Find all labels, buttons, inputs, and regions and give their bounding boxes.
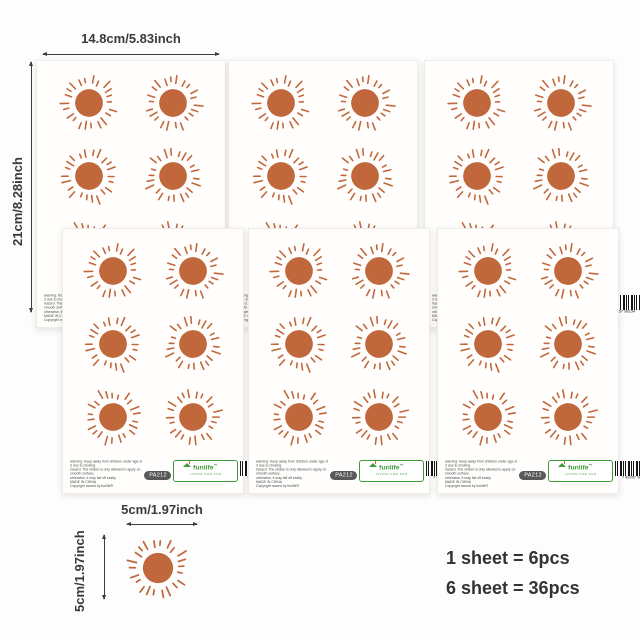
funlife-logo: funlife™ LIVING FOR FUN <box>359 460 424 482</box>
sun-sticker <box>444 300 532 388</box>
roof-icon <box>369 463 377 467</box>
sun-grid <box>259 238 419 450</box>
sku-badge: PA212 <box>144 471 171 480</box>
pcs-line-2: 6 sheet = 36pcs <box>446 573 580 603</box>
sun-sticker <box>447 376 529 458</box>
warning-text: warning: Keep away from children under a… <box>70 460 142 489</box>
brand-text: funlife <box>379 464 399 472</box>
sun-grid <box>73 238 233 450</box>
sticker-height-label: 5cm/1.97inch <box>72 528 87 612</box>
trademark-symbol: ™ <box>589 464 593 469</box>
sun-sticker <box>147 371 238 462</box>
logo-tagline: LIVING FOR FUN <box>565 473 597 476</box>
sheet-height-label: 21cm/8.28inch <box>10 156 25 246</box>
sun-sticker <box>522 371 613 462</box>
funlife-logo: funlife™ LIVING FOR FUN <box>173 460 238 482</box>
sticker-sheet: warning: Keep away from children under a… <box>248 228 430 494</box>
warning-line: Copyright owned by funlife® <box>70 484 142 488</box>
sun-sticker <box>515 57 608 150</box>
sheet-footer: warning: Keep away from children under a… <box>256 458 425 488</box>
sheet-width-label: 14.8cm/5.83inch <box>41 31 221 46</box>
sheet-footer: warning: Keep away from children under a… <box>70 458 239 488</box>
warning-text: warning: Keep away from children under a… <box>445 460 517 489</box>
sun-sticker <box>80 238 146 304</box>
sun-sticker <box>336 301 421 386</box>
chimney-icon <box>375 461 377 464</box>
sun-sticker <box>237 132 325 220</box>
warning-line: warning: Keep away from children under a… <box>445 460 517 468</box>
warning-line: Copyright owned by funlife® <box>445 484 517 488</box>
sun-sticker <box>433 132 521 220</box>
pcs-line-1: 1 sheet = 6pcs <box>446 543 580 573</box>
sun-sticker <box>130 133 215 218</box>
barcode-bars <box>615 461 640 476</box>
sun-sticker <box>258 376 340 458</box>
sheet-height-arrow <box>31 62 32 312</box>
sun-sticker <box>127 57 220 150</box>
roof-icon <box>183 463 191 467</box>
brand-text: funlife <box>193 464 213 472</box>
sku-text: PA212 <box>149 473 167 479</box>
sun-sticker <box>525 301 610 386</box>
logo-tagline: LIVING FOR FUN <box>376 473 408 476</box>
brand-name: funlife™ <box>193 465 218 472</box>
warning-line: Copyright owned by funlife® <box>256 484 328 488</box>
warning-line: hazard. The sticker is only allowed to a… <box>256 468 328 476</box>
sticker-sheet: warning: Keep away from children under a… <box>437 228 619 494</box>
trademark-symbol: ™ <box>400 464 404 469</box>
sun-sticker <box>147 225 240 318</box>
sku-text: PA212 <box>335 473 353 479</box>
sun-sticker <box>266 238 332 304</box>
funlife-logo: funlife™ LIVING FOR FUN <box>548 460 613 482</box>
sun-sticker <box>518 133 603 218</box>
sun-sticker <box>69 300 157 388</box>
sun-sticker <box>248 70 314 136</box>
sticker-sheet: warning: Keep away from children under a… <box>62 228 244 494</box>
brand-text: funlife <box>568 464 588 472</box>
sticker-height-arrow <box>104 535 105 599</box>
sheet-width-arrow <box>43 54 219 55</box>
sun-sticker <box>45 132 133 220</box>
sku-text: PA212 <box>524 473 542 479</box>
sun-sticker <box>56 70 122 136</box>
brand-name: funlife™ <box>568 465 593 472</box>
sun-sticker <box>455 238 521 304</box>
warning-line: warning: Keep away from children under a… <box>70 460 142 468</box>
warning-line: warning: Keep away from children under a… <box>256 460 328 468</box>
sticker-width-label: 5cm/1.97inch <box>102 502 222 517</box>
barcode: 7 42057 98234 <box>615 461 640 483</box>
sun-sticker <box>322 133 407 218</box>
warning-text: warning: Keep away from children under a… <box>256 460 328 489</box>
sun-sticker <box>333 225 426 318</box>
sun-sticker <box>72 376 154 458</box>
sku-badge: PA212 <box>519 471 546 480</box>
sun-sticker <box>522 225 615 318</box>
sun-sticker <box>333 371 424 462</box>
sun-sticker <box>319 57 412 150</box>
sun-grid <box>448 238 608 450</box>
roof-icon <box>558 463 566 467</box>
chimney-icon <box>189 461 191 464</box>
barcode-number: 7 42057 98234 <box>622 476 640 480</box>
logo-tagline: LIVING FOR FUN <box>190 473 222 476</box>
sku-badge: PA212 <box>330 471 357 480</box>
sun-sticker <box>444 70 510 136</box>
sun-sticker <box>150 301 235 386</box>
product-image: 14.8cm/5.83inch 21cm/8.28inch warning: K… <box>0 0 640 640</box>
warning-line: hazard. The sticker is only allowed to a… <box>445 468 517 476</box>
chimney-icon <box>564 461 566 464</box>
pcs-info: 1 sheet = 6pcs 6 sheet = 36pcs <box>446 543 580 603</box>
brand-name: funlife™ <box>379 465 404 472</box>
single-sun-sticker <box>114 524 202 612</box>
trademark-symbol: ™ <box>214 464 218 469</box>
sun-sticker <box>255 300 343 388</box>
sheet-footer: warning: Keep away from children under a… <box>445 458 614 488</box>
warning-line: hazard. The sticker is only allowed to a… <box>70 468 142 476</box>
